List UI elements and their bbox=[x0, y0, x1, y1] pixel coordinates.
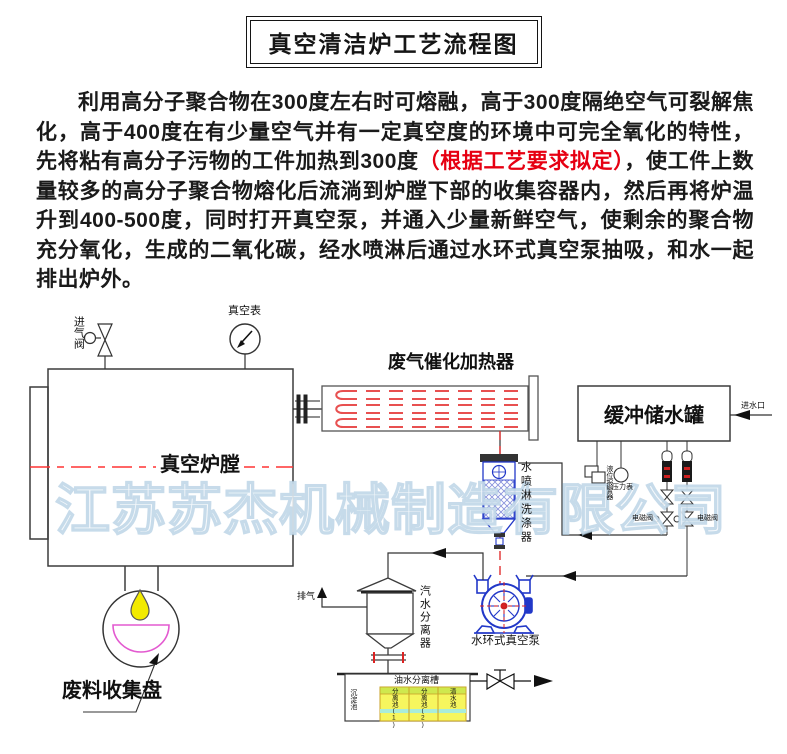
waste-pan-label: 废料收集盘 bbox=[62, 680, 162, 702]
title-box: 真空清洁炉工艺流程图 bbox=[246, 16, 542, 68]
catalytic-heater-shape bbox=[322, 376, 538, 440]
vacuum-pump-label: 水环式真空泵 bbox=[458, 635, 553, 648]
vacuum-furnace-shape bbox=[30, 369, 293, 591]
clean-water-cell-label: 清水池 bbox=[448, 688, 455, 708]
buffer-tank-label: 缓冲储水罐 bbox=[578, 405, 730, 427]
page: 真空清洁炉工艺流程图 利用高分子聚合物在300度左右时可熔融，高于300度隔绝空… bbox=[0, 0, 787, 754]
pressure-gauge-icon bbox=[614, 468, 628, 482]
drain-valve bbox=[470, 670, 553, 689]
oil-water-tank-label: 油水分离槽 bbox=[394, 675, 439, 685]
scrubber-label: 水喷淋洗涤器 bbox=[519, 461, 531, 545]
spray-scrubber-shape bbox=[480, 454, 518, 549]
title-area: 真空清洁炉工艺流程图 bbox=[0, 0, 787, 68]
flow-meter-left bbox=[653, 451, 673, 535]
tank-stubs bbox=[597, 441, 687, 468]
furnace-outlet-flange bbox=[293, 395, 322, 423]
intro-paragraph: 利用高分子聚合物在300度左右时可熔融，高于300度隔绝空气可裂解焦化，高于40… bbox=[36, 88, 754, 295]
separator-label: 汽水分离器 bbox=[418, 585, 430, 650]
water-line-pump bbox=[526, 571, 687, 581]
settling-cell-label: 沉淀池 bbox=[349, 689, 357, 710]
water-inlet-label: 进水口 bbox=[741, 402, 765, 411]
pump-to-separator-pipe bbox=[388, 548, 483, 580]
intro-red-note: （根据工艺要求拟定） bbox=[419, 150, 625, 173]
exhaust-label: 排气 bbox=[297, 591, 315, 601]
intake-valve-label: 进气阀 bbox=[72, 316, 84, 349]
intake-valve-icon bbox=[85, 324, 113, 369]
level-alarm-icon bbox=[585, 466, 605, 483]
separator-shape bbox=[357, 578, 416, 686]
page-title: 真空清洁炉工艺流程图 bbox=[250, 20, 538, 64]
solenoid-valve-left-label: 电磁阀 bbox=[632, 515, 653, 523]
furnace-label: 真空炉膛 bbox=[156, 454, 244, 476]
tank-inlet bbox=[730, 410, 772, 420]
process-flow-diagram: 江苏苏杰机械制造有限公司 进气阀 真空表 真空炉膛 废气催化加热器 缓冲储水罐 … bbox=[0, 299, 787, 748]
flow-meter-right bbox=[674, 451, 693, 576]
catalytic-heater-label: 废气催化加热器 bbox=[388, 352, 514, 372]
vacuum-gauge-icon bbox=[230, 324, 260, 369]
vacuum-gauge-label: 真空表 bbox=[228, 305, 261, 317]
separation-cell-1-label: 分离池(1) bbox=[390, 688, 397, 729]
separation-cell-2-label: 分离池(2) bbox=[419, 688, 426, 729]
level-alarm-label: 液位报警器 bbox=[605, 465, 613, 500]
solenoid-valve-right-label: 电磁阀 bbox=[697, 515, 718, 523]
pressure-gauge-label: 压力表 bbox=[612, 484, 633, 492]
